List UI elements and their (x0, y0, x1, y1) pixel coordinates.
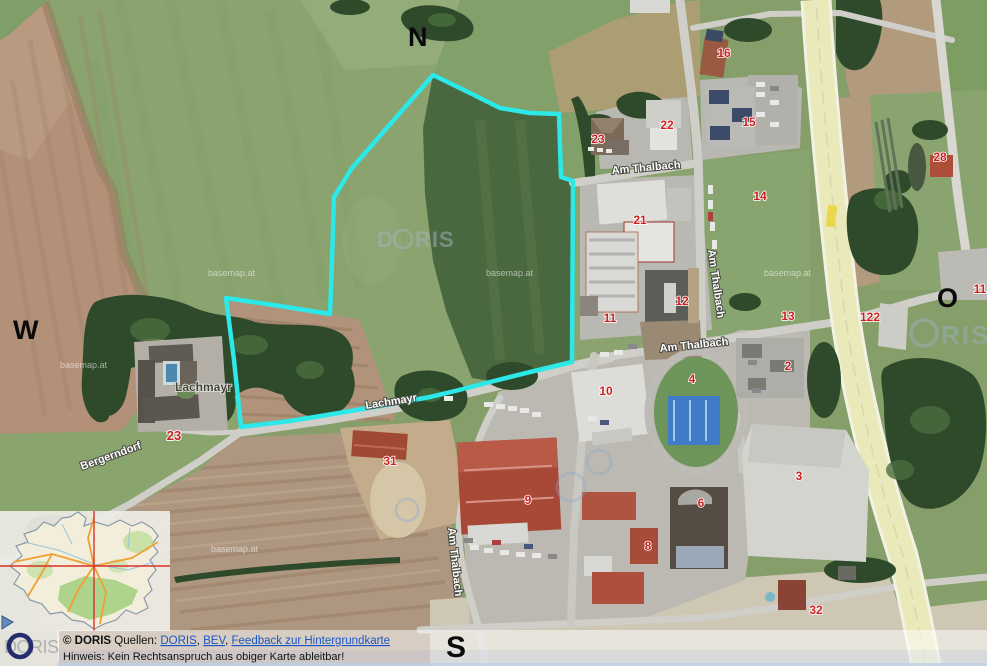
svg-text:21: 21 (633, 213, 647, 227)
svg-text:3: 3 (796, 469, 803, 483)
svg-text:31: 31 (383, 454, 397, 468)
svg-text:13: 13 (781, 309, 795, 323)
svg-text:11: 11 (974, 282, 987, 296)
svg-text:32: 32 (809, 603, 823, 617)
svg-text:© DORIS Quellen: DORIS, BEV,: © DORIS Quellen: DORIS, BEV, Feedback zu… (63, 635, 390, 647)
svg-text:14: 14 (753, 189, 767, 203)
svg-text:2: 2 (785, 359, 792, 373)
svg-text:W: W (13, 315, 39, 345)
svg-text:Hinweis: Kein Rechtsanspruch a: Hinweis: Kein Rechtsanspruch aus obiger … (63, 651, 344, 663)
svg-text:4: 4 (689, 372, 696, 386)
svg-text:12: 12 (675, 294, 689, 308)
svg-text:16: 16 (717, 46, 731, 60)
svg-text:10: 10 (599, 384, 613, 398)
svg-text:6: 6 (698, 496, 705, 510)
svg-text:basemap.at: basemap.at (60, 360, 108, 370)
svg-text:23: 23 (167, 428, 181, 443)
svg-text:9: 9 (525, 493, 532, 507)
svg-text:23: 23 (591, 132, 605, 146)
svg-text:Lachmayr: Lachmayr (175, 380, 232, 394)
svg-text:8: 8 (645, 539, 652, 553)
svg-text:122: 122 (860, 310, 880, 324)
svg-text:15: 15 (742, 115, 756, 129)
svg-text:28: 28 (933, 150, 947, 164)
svg-text:basemap.at: basemap.at (764, 268, 812, 278)
svg-text:11: 11 (604, 311, 617, 325)
svg-text:D: D (377, 227, 394, 252)
svg-text:RIS: RIS (941, 320, 987, 350)
svg-text:basemap.at: basemap.at (208, 268, 256, 278)
svg-text:N: N (408, 22, 428, 52)
svg-text:S: S (446, 631, 466, 664)
svg-text:22: 22 (660, 118, 674, 132)
svg-text:basemap.at: basemap.at (211, 544, 259, 554)
svg-text:basemap.at: basemap.at (486, 268, 534, 278)
svg-text:RIS: RIS (415, 227, 455, 252)
svg-text:O: O (937, 283, 958, 313)
